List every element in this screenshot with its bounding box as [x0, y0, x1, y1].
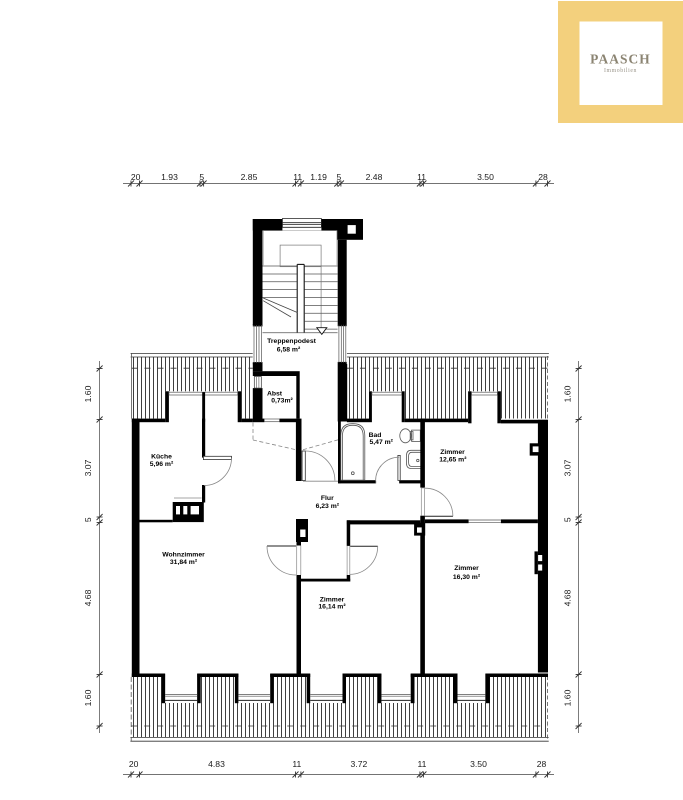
svg-text:5,96 m²: 5,96 m² — [150, 461, 174, 468]
svg-text:20: 20 — [131, 172, 141, 182]
svg-text:5: 5 — [83, 517, 93, 522]
svg-text:12,65 m²: 12,65 m² — [439, 457, 467, 464]
svg-text:Treppenpodest: Treppenpodest — [267, 338, 316, 345]
svg-text:11: 11 — [293, 172, 302, 182]
svg-text:28: 28 — [537, 759, 547, 769]
svg-text:Immobilien: Immobilien — [604, 68, 637, 74]
svg-text:Wohnzimmer: Wohnzimmer — [162, 551, 205, 558]
svg-text:4.83: 4.83 — [208, 759, 225, 769]
svg-text:1.60: 1.60 — [563, 689, 573, 706]
svg-text:20: 20 — [129, 759, 139, 769]
svg-text:11: 11 — [292, 759, 301, 769]
svg-text:5,47 m²: 5,47 m² — [370, 439, 394, 446]
svg-text:2.85: 2.85 — [241, 172, 258, 182]
svg-text:Flur: Flur — [321, 495, 334, 502]
svg-text:Abst: Abst — [267, 390, 283, 397]
svg-text:11: 11 — [417, 172, 426, 182]
svg-text:2.48: 2.48 — [366, 172, 383, 182]
svg-text:Zimmer: Zimmer — [440, 449, 465, 456]
svg-text:1.60: 1.60 — [83, 689, 93, 706]
svg-text:PAASCH: PAASCH — [590, 52, 651, 67]
svg-text:1.93: 1.93 — [161, 172, 178, 182]
svg-text:3.72: 3.72 — [351, 759, 368, 769]
svg-text:Zimmer: Zimmer — [320, 596, 345, 603]
svg-text:Zimmer: Zimmer — [454, 565, 479, 572]
svg-text:1.60: 1.60 — [83, 385, 93, 402]
svg-text:6,23 m²: 6,23 m² — [316, 503, 340, 510]
svg-text:4.68: 4.68 — [563, 589, 573, 606]
svg-text:5: 5 — [199, 172, 204, 182]
svg-text:28: 28 — [538, 172, 548, 182]
svg-text:11: 11 — [417, 759, 426, 769]
svg-text:5: 5 — [563, 517, 573, 522]
svg-text:16,30 m²: 16,30 m² — [453, 574, 481, 581]
svg-text:4.68: 4.68 — [83, 589, 93, 606]
svg-text:3.50: 3.50 — [477, 172, 494, 182]
svg-text:6,58 m²: 6,58 m² — [277, 347, 301, 354]
svg-text:16,14 m²: 16,14 m² — [318, 604, 346, 611]
svg-text:3.50: 3.50 — [470, 759, 487, 769]
svg-text:1.60: 1.60 — [563, 385, 573, 402]
svg-text:0,73m²: 0,73m² — [271, 398, 293, 405]
svg-text:31,84 m²: 31,84 m² — [170, 559, 198, 566]
svg-text:5: 5 — [337, 172, 342, 182]
svg-text:1.19: 1.19 — [310, 172, 327, 182]
svg-text:Bad: Bad — [369, 432, 382, 439]
svg-text:3.07: 3.07 — [563, 459, 573, 476]
svg-text:Küche: Küche — [151, 453, 172, 460]
svg-text:3.07: 3.07 — [83, 459, 93, 476]
